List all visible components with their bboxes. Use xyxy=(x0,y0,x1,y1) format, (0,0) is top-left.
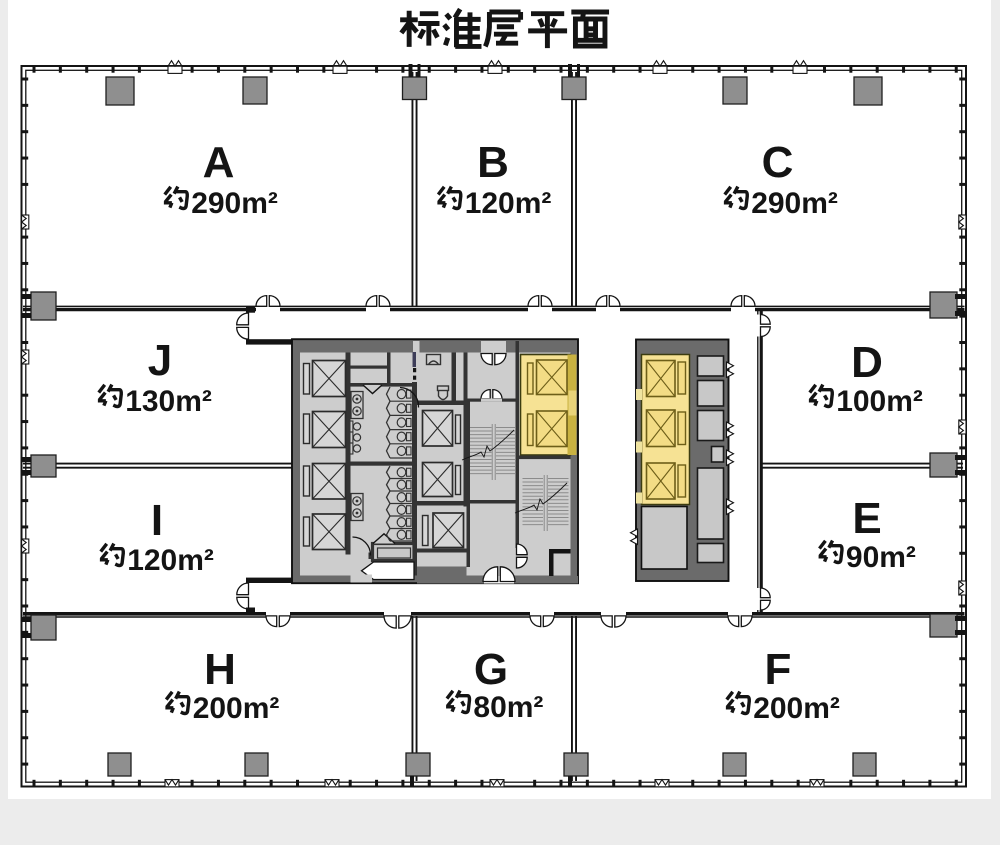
svg-text:B: B xyxy=(477,138,509,187)
svg-text:90m²: 90m² xyxy=(846,541,916,574)
svg-text:J: J xyxy=(148,336,172,385)
svg-text:G: G xyxy=(474,645,508,694)
svg-text:130m²: 130m² xyxy=(125,385,212,418)
svg-text:D: D xyxy=(851,338,883,387)
svg-text:100m²: 100m² xyxy=(836,385,923,418)
svg-text:I: I xyxy=(151,496,163,545)
svg-text:80m²: 80m² xyxy=(473,691,543,724)
svg-text:120m²: 120m² xyxy=(465,187,552,220)
svg-text:H: H xyxy=(204,645,236,694)
svg-text:290m²: 290m² xyxy=(751,187,838,220)
svg-text:F: F xyxy=(765,645,792,694)
svg-text:C: C xyxy=(762,138,794,187)
svg-text:290m²: 290m² xyxy=(191,187,278,220)
svg-text:200m²: 200m² xyxy=(753,692,840,725)
svg-text:200m²: 200m² xyxy=(193,692,280,725)
svg-text:120m²: 120m² xyxy=(127,544,214,577)
svg-text:A: A xyxy=(203,138,235,187)
svg-text:E: E xyxy=(852,494,881,543)
